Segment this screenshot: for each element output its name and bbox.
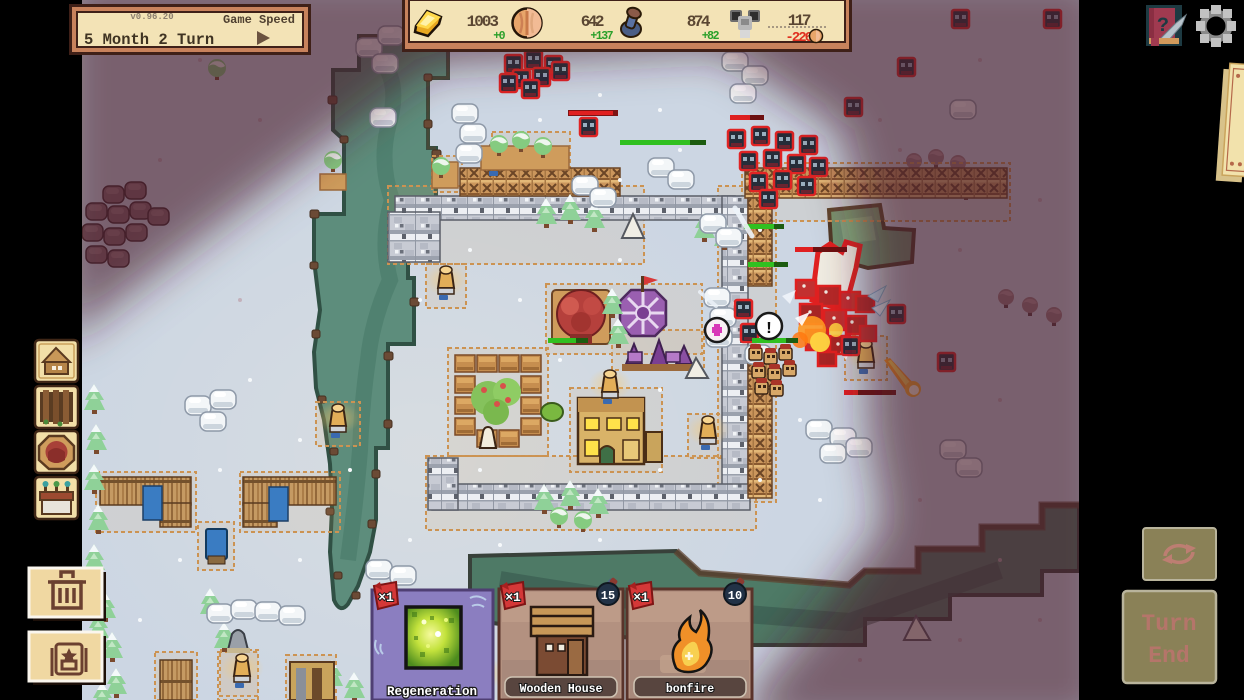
svg-text:874: 874 xyxy=(687,13,711,31)
svg-text:v0.96.20: v0.96.20 xyxy=(130,12,173,22)
svg-text:Wooden House: Wooden House xyxy=(520,683,603,696)
svg-text:10: 10 xyxy=(728,589,742,603)
svg-text:bonfire: bonfire xyxy=(666,683,714,696)
svg-text:Regeneration: Regeneration xyxy=(387,685,477,699)
svg-text:642: 642 xyxy=(581,13,604,31)
svg-text:15: 15 xyxy=(601,589,615,603)
svg-text:+137: +137 xyxy=(590,30,613,43)
svg-text:×1: ×1 xyxy=(378,590,394,605)
svg-text:Turn: Turn xyxy=(1141,611,1196,637)
svg-text:End: End xyxy=(1148,643,1189,669)
svg-text:+0: +0 xyxy=(493,30,505,43)
svg-text:117: 117 xyxy=(788,12,811,30)
svg-text:-226: -226 xyxy=(785,30,812,46)
svg-text:!: ! xyxy=(764,320,774,339)
svg-text:5 Month 2 Turn: 5 Month 2 Turn xyxy=(84,31,214,49)
svg-text:Game Speed: Game Speed xyxy=(223,13,295,27)
svg-text:+82: +82 xyxy=(702,30,720,43)
svg-text:1003: 1003 xyxy=(467,13,499,31)
